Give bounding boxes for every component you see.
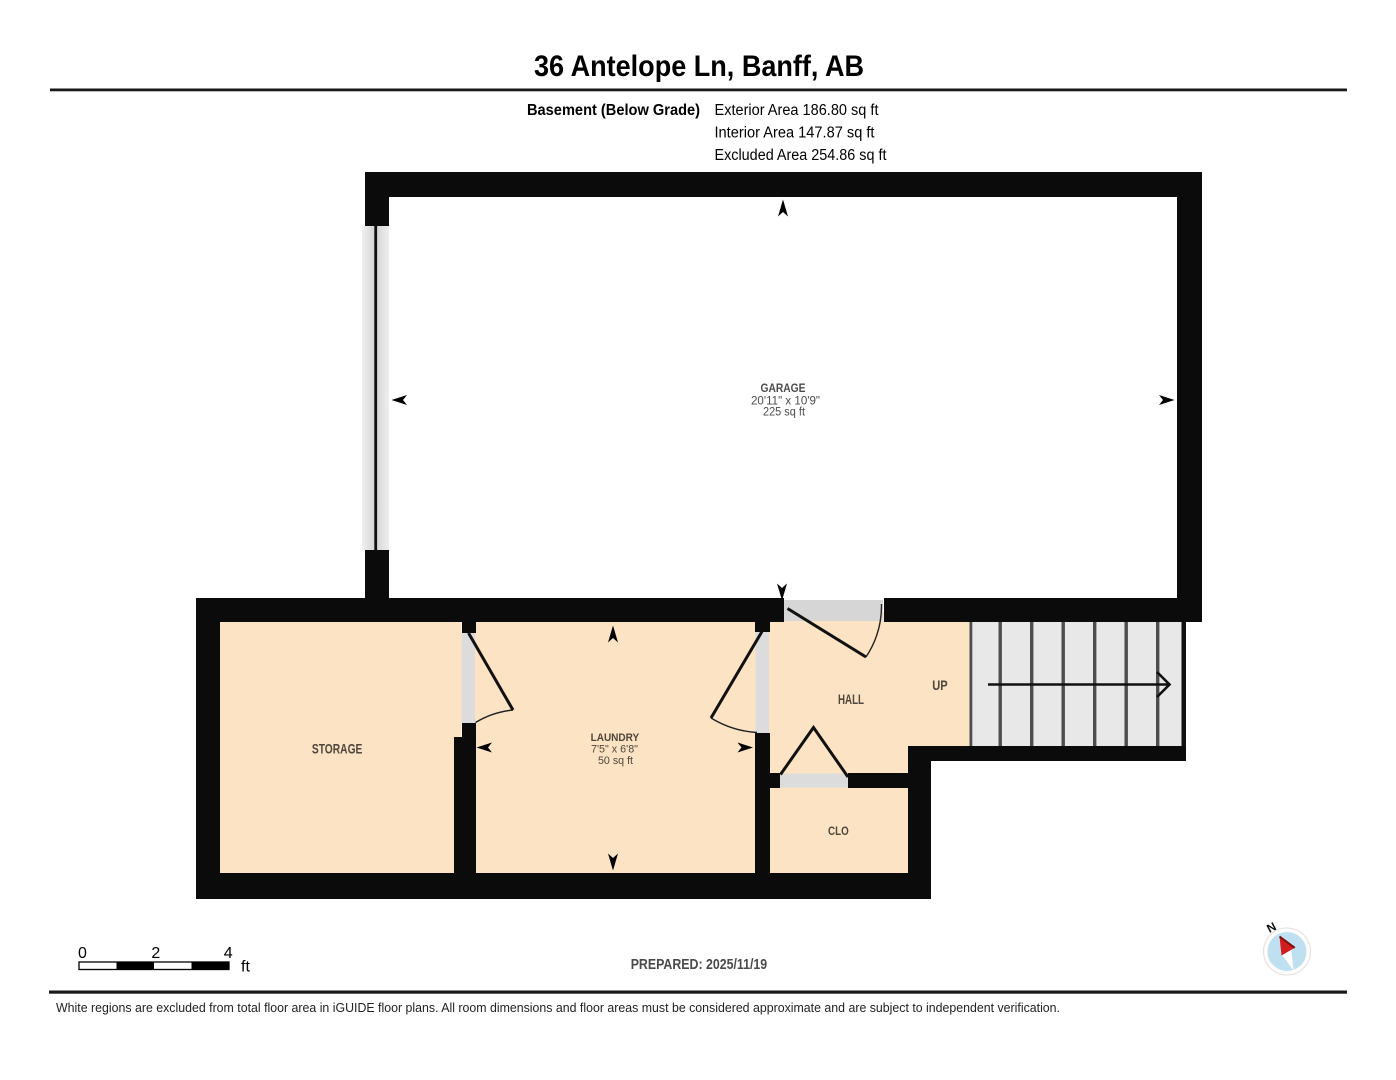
svg-text:CLO: CLO <box>828 826 849 838</box>
svg-text:36 Antelope Ln, Banff, AB: 36 Antelope Ln, Banff, AB <box>534 50 864 83</box>
svg-text:2: 2 <box>151 945 160 962</box>
svg-text:Interior Area 147.87 sq ft: Interior Area 147.87 sq ft <box>715 125 876 142</box>
svg-text:LAUNDRY: LAUNDRY <box>591 732 640 744</box>
svg-text:225 sq ft: 225 sq ft <box>763 407 806 419</box>
svg-text:White regions are excluded fro: White regions are excluded from total fl… <box>56 1001 1060 1015</box>
svg-text:Excluded Area 254.86 sq ft: Excluded Area 254.86 sq ft <box>715 147 888 164</box>
svg-text:50 sq ft: 50 sq ft <box>598 755 633 767</box>
svg-text:HALL: HALL <box>838 691 864 707</box>
svg-text:ft: ft <box>241 959 250 976</box>
svg-text:7'5" x 6'8": 7'5" x 6'8" <box>591 744 638 756</box>
svg-text:Exterior Area 186.80 sq ft: Exterior Area 186.80 sq ft <box>715 102 880 119</box>
svg-text:0: 0 <box>78 945 87 962</box>
svg-text:Basement (Below Grade): Basement (Below Grade) <box>527 102 700 119</box>
svg-text:UP: UP <box>932 677 947 693</box>
svg-text:GARAGE: GARAGE <box>761 382 806 395</box>
svg-text:4: 4 <box>224 945 233 962</box>
svg-text:PREPARED: 2025/11/19: PREPARED: 2025/11/19 <box>631 956 768 973</box>
svg-text:STORAGE: STORAGE <box>312 741 363 757</box>
